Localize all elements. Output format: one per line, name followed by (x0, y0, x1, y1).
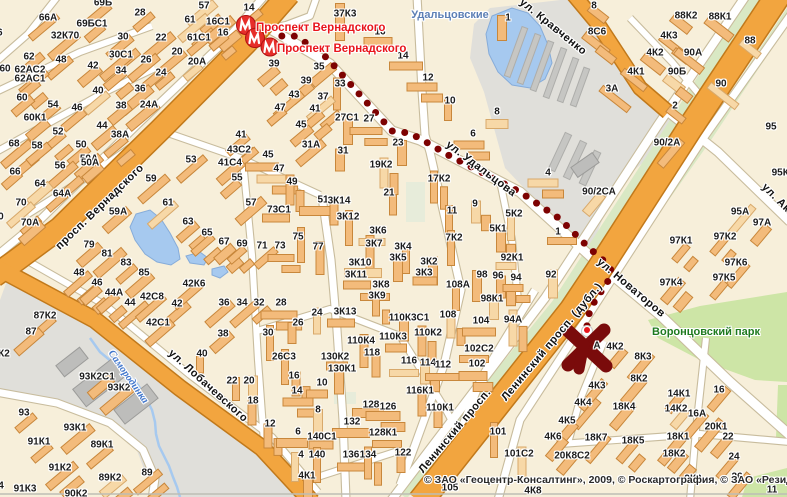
route-dot (456, 158, 463, 165)
building (491, 423, 498, 458)
building (116, 264, 138, 284)
building (496, 263, 516, 270)
building (298, 228, 305, 263)
route-dot (302, 39, 309, 46)
building (448, 231, 455, 266)
building (375, 463, 382, 485)
building (426, 374, 461, 381)
destination-x-marker[interactable] (579, 344, 584, 369)
building (334, 78, 341, 110)
building (750, 224, 771, 247)
route-dot (424, 139, 431, 146)
building (390, 62, 423, 70)
building (472, 201, 481, 223)
building (490, 295, 499, 320)
building (413, 277, 437, 285)
route-dot (356, 90, 363, 97)
building (314, 448, 321, 483)
route-dot (490, 175, 497, 182)
building (486, 120, 508, 129)
building (394, 257, 403, 282)
building (710, 280, 728, 300)
building (286, 175, 294, 205)
route-dot (347, 81, 354, 88)
building (672, 243, 690, 263)
building (726, 262, 750, 289)
building (454, 141, 484, 149)
building (549, 270, 558, 298)
pond (212, 266, 228, 278)
building (145, 319, 175, 347)
building (296, 139, 326, 166)
building (469, 152, 490, 160)
building (418, 386, 426, 416)
building (386, 344, 407, 352)
building (516, 296, 530, 303)
route-dot (597, 288, 604, 295)
building (205, 300, 235, 328)
building (270, 79, 288, 96)
building (528, 179, 558, 187)
building (366, 236, 374, 269)
building (263, 214, 290, 222)
building (503, 285, 523, 292)
building (86, 2, 112, 25)
building (307, 390, 328, 398)
building (15, 413, 37, 433)
route-dot (607, 266, 614, 273)
building (509, 310, 517, 346)
building (87, 445, 114, 469)
building (78, 65, 103, 88)
route-dot (278, 33, 285, 40)
building (556, 453, 577, 476)
building (722, 249, 736, 264)
building (670, 14, 693, 35)
route-dot (554, 214, 561, 221)
building (373, 441, 402, 448)
route-dot (590, 248, 597, 255)
building (407, 83, 437, 91)
building (264, 424, 272, 448)
building (102, 206, 131, 233)
building (338, 463, 365, 471)
building (157, 49, 187, 76)
building (507, 290, 516, 305)
building (390, 174, 398, 195)
building (373, 296, 380, 316)
building (519, 326, 527, 351)
route-dot (291, 33, 298, 40)
building (403, 245, 410, 274)
building (434, 407, 442, 428)
building (288, 323, 296, 344)
route-dot (501, 180, 508, 187)
building (336, 4, 345, 41)
building (346, 211, 353, 246)
building (390, 195, 397, 215)
building (292, 453, 299, 482)
building (248, 401, 256, 425)
building (397, 452, 405, 473)
building (482, 215, 491, 230)
building (498, 16, 507, 41)
building (453, 282, 460, 311)
building (710, 236, 728, 256)
building (233, 378, 240, 401)
building (314, 308, 321, 334)
route-dot (543, 207, 550, 214)
building (473, 383, 493, 392)
building (610, 401, 637, 431)
building (246, 163, 279, 171)
route-dot (512, 186, 519, 193)
building (345, 269, 382, 278)
building (497, 230, 506, 252)
building (422, 94, 443, 102)
route-dot (599, 256, 606, 263)
building (336, 149, 345, 171)
route-dot (322, 53, 329, 60)
building (463, 328, 496, 336)
map-canvas[interactable]: 66А6669Б2869БС1576116С11432К70302261С116… (0, 0, 787, 497)
map-base-layers (0, 0, 787, 497)
building (728, 204, 756, 235)
building (282, 266, 300, 273)
route-dot (445, 152, 452, 159)
building (316, 242, 324, 275)
building (268, 255, 294, 262)
building (249, 376, 258, 404)
building (76, 242, 103, 267)
building (365, 139, 387, 146)
building (277, 439, 308, 448)
building (333, 429, 370, 438)
building (431, 171, 438, 203)
copyright-text: © ЗАО «Геоцентр-Консалтинг», 2009, © Рос… (424, 474, 787, 486)
building (428, 342, 436, 363)
building (366, 412, 400, 421)
building (292, 372, 300, 396)
route-dot (372, 109, 379, 116)
route-dot (312, 45, 319, 52)
building (460, 356, 489, 363)
building (459, 372, 487, 381)
building (197, 353, 204, 373)
building (372, 353, 380, 377)
route-dot (563, 222, 570, 229)
route-dot (604, 278, 611, 285)
building (283, 398, 313, 406)
building (290, 125, 314, 147)
route-dot (479, 169, 486, 176)
building (398, 141, 407, 166)
building (350, 128, 382, 135)
building (138, 174, 170, 204)
building (31, 443, 53, 463)
route-dot (435, 146, 442, 153)
building (267, 326, 274, 361)
route-dot (364, 100, 371, 107)
building (400, 313, 409, 341)
building (518, 447, 526, 477)
building (328, 319, 355, 327)
route-dot (380, 118, 387, 125)
route-dot (413, 133, 420, 140)
building (364, 38, 392, 47)
route-dot (331, 62, 338, 69)
route-dot (586, 310, 593, 317)
building (508, 212, 515, 241)
route-dot (523, 193, 530, 200)
building (445, 98, 452, 121)
route-dot (572, 231, 579, 238)
building (381, 423, 405, 432)
building (543, 190, 564, 198)
building (390, 370, 419, 377)
building (684, 256, 698, 271)
building (447, 314, 455, 338)
destination-pin-dot (584, 327, 590, 333)
route-dot (581, 240, 588, 247)
building (282, 350, 289, 385)
building (707, 386, 730, 412)
building (548, 238, 577, 245)
building (365, 447, 372, 479)
route-dot (339, 72, 346, 79)
building (335, 366, 344, 394)
building (418, 326, 426, 356)
route-dot (389, 128, 396, 135)
building (261, 311, 297, 319)
green-yard (406, 182, 425, 222)
building (1, 170, 22, 190)
route-dot (468, 163, 475, 170)
building (507, 244, 516, 259)
building (629, 454, 646, 472)
building (314, 410, 323, 435)
building (383, 310, 390, 324)
building (210, 330, 235, 353)
route-dot (591, 299, 598, 306)
building (176, 155, 207, 183)
building (473, 271, 482, 302)
building (330, 201, 338, 225)
route-dot (533, 200, 540, 207)
building (61, 424, 95, 455)
building (380, 158, 388, 188)
building (360, 335, 368, 368)
building (344, 281, 371, 289)
route-dot (401, 129, 408, 136)
